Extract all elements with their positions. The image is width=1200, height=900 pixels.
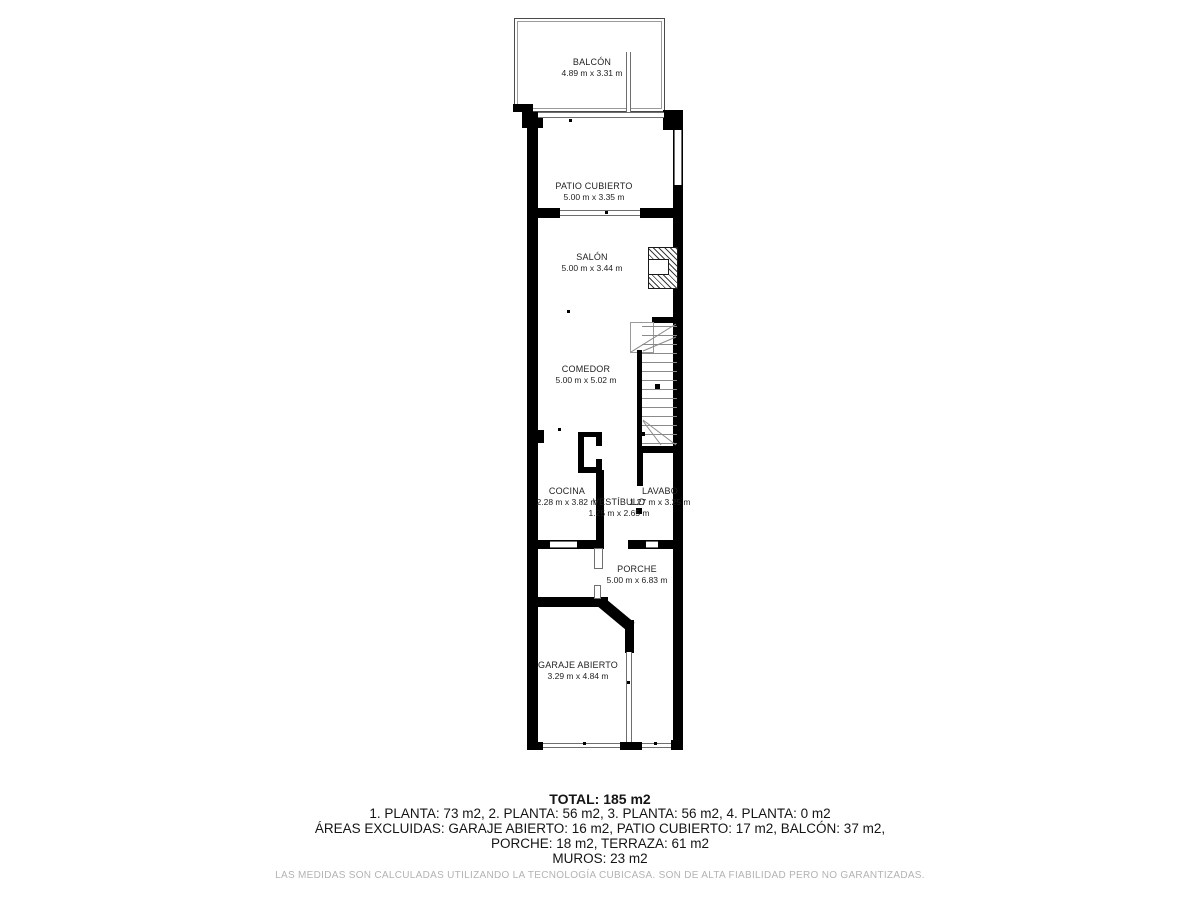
room-label-comedor: COMEDOR 5.00 m x 5.02 m	[556, 364, 617, 386]
balcony-divider-line	[626, 52, 631, 112]
marker-dot	[558, 428, 561, 431]
room-name: COCINA	[537, 486, 598, 497]
salon-sliding-door	[560, 210, 640, 216]
marker-dot	[675, 392, 678, 395]
room-dims: 1.25 m x 2.65 m	[589, 508, 650, 519]
excluded-areas-line2: PORCHE: 18 m2, TERRAZA: 61 m2	[0, 836, 1200, 851]
room-label-garaje: GARAJE ABIERTO 3.29 m x 4.84 m	[538, 660, 618, 682]
disclaimer-text: LAS MEDIDAS SON CALCULADAS UTILIZANDO LA…	[0, 870, 1200, 881]
room-dims: 1.27 m x 3.25 m	[630, 497, 691, 508]
room-dims: 5.00 m x 6.83 m	[607, 575, 668, 586]
room-label-salon: SALÓN 5.00 m x 3.44 m	[562, 252, 623, 274]
room-name: COMEDOR	[556, 364, 617, 375]
porche-door-opening	[604, 540, 628, 549]
fireplace-notch	[648, 259, 669, 275]
marker-dot	[654, 742, 657, 745]
bottom-window-left	[550, 541, 577, 548]
bottom-rail-left	[543, 743, 620, 748]
room-name: GARAJE ABIERTO	[538, 660, 618, 671]
marker-dot	[567, 310, 570, 313]
marker-dot	[569, 119, 572, 122]
marker-dot	[655, 384, 660, 389]
door-leaf-open	[594, 548, 603, 569]
marker-dot	[627, 681, 630, 684]
room-label-patio: PATIO CUBIERTO 5.00 m x 3.35 m	[555, 181, 632, 203]
room-dims: 5.00 m x 3.35 m	[555, 192, 632, 203]
garage-side-rail	[626, 652, 632, 742]
room-name: LAVABO	[630, 486, 691, 497]
marker-dot	[641, 432, 645, 436]
marker-dot	[605, 211, 608, 214]
room-dims: 4.89 m x 3.31 m	[562, 68, 623, 79]
bottom-window-right	[646, 541, 658, 548]
total-area: TOTAL: 185 m2	[0, 791, 1200, 807]
room-name: PATIO CUBIERTO	[555, 181, 632, 192]
room-name: BALCÓN	[562, 57, 623, 68]
room-dims: 5.00 m x 3.44 m	[562, 263, 623, 274]
room-name: PORCHE	[607, 564, 668, 575]
marker-dot	[583, 742, 586, 745]
room-dims: 5.00 m x 5.02 m	[556, 375, 617, 386]
room-label-porche: PORCHE 5.00 m x 6.83 m	[607, 564, 668, 586]
room-dims: 3.29 m x 4.84 m	[538, 671, 618, 682]
door-leaf-open-2	[594, 585, 601, 599]
room-label-balcon: BALCÓN 4.89 m x 3.31 m	[562, 57, 623, 79]
muros-area: MUROS: 23 m2	[0, 851, 1200, 866]
excluded-areas-line1: ÁREAS EXCLUIDAS: GARAJE ABIERTO: 16 m2, …	[0, 821, 1200, 836]
room-name: SALÓN	[562, 252, 623, 263]
plantas-areas: 1. PLANTA: 73 m2, 2. PLANTA: 56 m2, 3. P…	[0, 806, 1200, 821]
patio-top-glass-wall	[538, 112, 664, 118]
patio-right-window	[674, 130, 682, 185]
room-label-lavabo: LAVABO 1.27 m x 3.25 m	[630, 486, 691, 508]
floor-plan: BALCÓN 4.89 m x 3.31 m PATIO CUBIERTO 5.…	[0, 0, 1200, 760]
floorplan-page: BALCÓN 4.89 m x 3.31 m PATIO CUBIERTO 5.…	[0, 0, 1200, 900]
